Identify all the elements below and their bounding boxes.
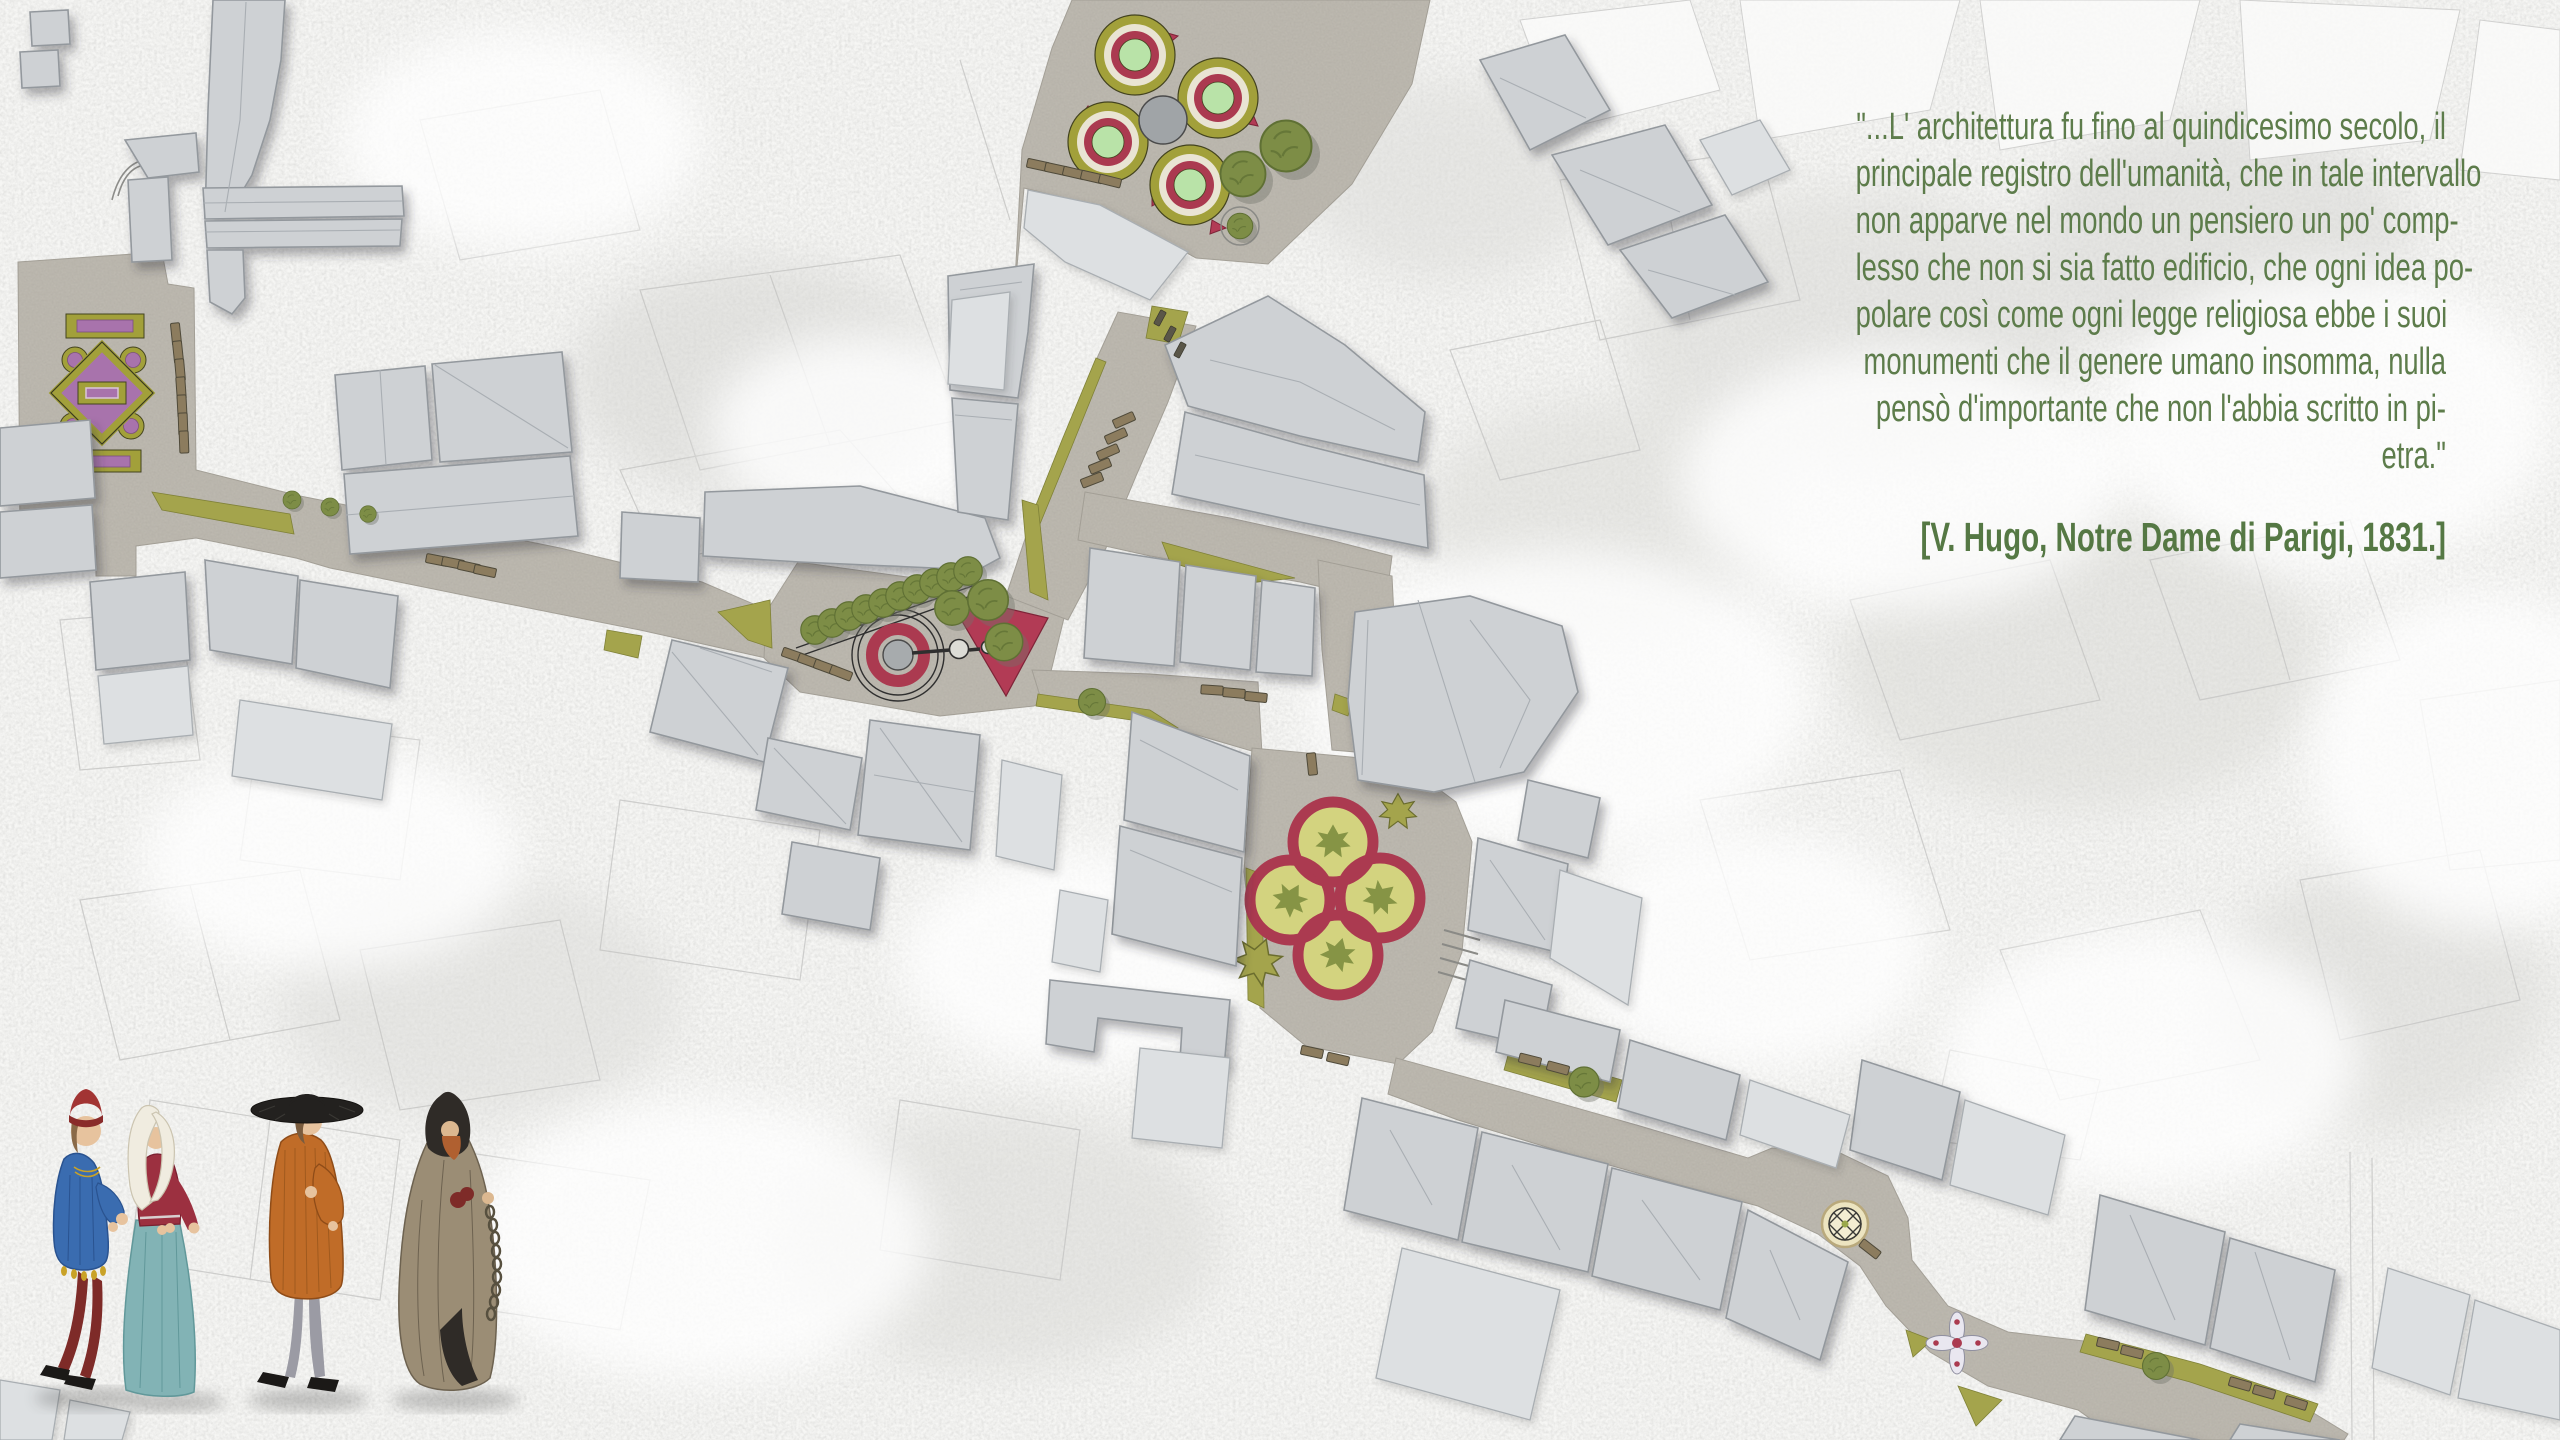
- garden-circle: [1150, 145, 1230, 225]
- building: [296, 580, 398, 688]
- building: [1132, 1048, 1230, 1148]
- building: [620, 512, 700, 582]
- hugo-quote-block: "...L' architettura fu fino al quindices…: [1856, 104, 2446, 561]
- building: [205, 219, 402, 248]
- building: [0, 505, 96, 578]
- garden-circle: [1178, 58, 1258, 138]
- quote-line: lesso che non si sia fatto edificio, che…: [1856, 245, 2446, 292]
- channel-node: [950, 640, 969, 659]
- building: [0, 1380, 60, 1440]
- quote-line: polare così come ogni legge religiosa eb…: [1856, 292, 2446, 339]
- building: [128, 177, 172, 262]
- quote-line: pensò d'importante che non l'abbia scrit…: [1856, 386, 2446, 433]
- fountain-basin: [883, 640, 913, 670]
- building: [98, 666, 193, 744]
- building: [90, 572, 190, 670]
- building: [1180, 565, 1256, 670]
- quote-line: etra.": [1856, 433, 2446, 480]
- central-paved-circle: [1139, 96, 1187, 144]
- quote-attribution: [V. Hugo, Notre Dame di Parigi, 1831.]: [1856, 514, 2446, 561]
- masterplan-presentation-board: { "quote": { "lines": [ "\"...L' archite…: [0, 0, 2560, 1440]
- garden-circle: [1095, 15, 1175, 95]
- building: [996, 760, 1062, 870]
- building: [782, 842, 880, 930]
- building: [1084, 548, 1180, 666]
- quote-line: monumenti che il genere umano insomma, n…: [1856, 339, 2446, 386]
- quote-line: "...L' architettura fu fino al quindices…: [1856, 104, 2446, 151]
- building: [948, 292, 1010, 390]
- building: [1052, 890, 1108, 972]
- building: [1256, 580, 1315, 676]
- building: [20, 50, 60, 88]
- building: [205, 560, 298, 664]
- building: [0, 420, 95, 506]
- quote-line: principale registro dell'umanità, che in…: [1856, 151, 2446, 198]
- building: [952, 398, 1018, 520]
- quote-line: non apparve nel mondo un pensiero un po'…: [1856, 198, 2446, 245]
- building: [30, 10, 70, 46]
- building: [858, 720, 980, 850]
- paving-medallion: [1822, 1201, 1868, 1247]
